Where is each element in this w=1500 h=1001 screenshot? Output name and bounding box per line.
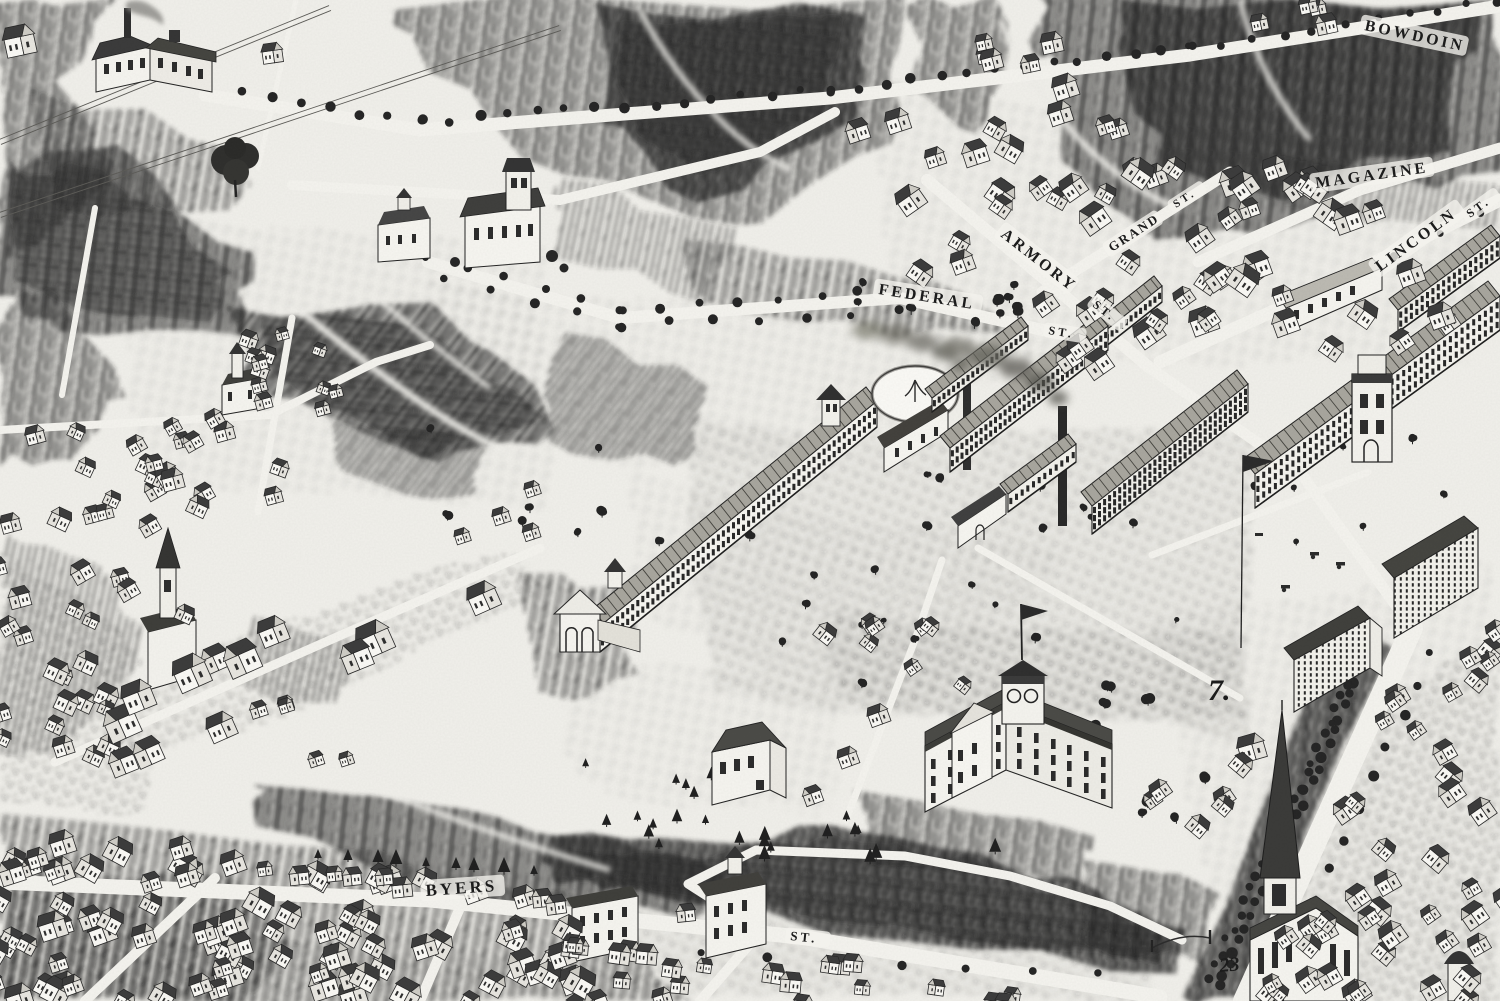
svg-text:7.: 7. — [1208, 674, 1231, 707]
svg-text:23: 23 — [1218, 953, 1241, 977]
svg-text:ST.: ST. — [790, 928, 819, 946]
